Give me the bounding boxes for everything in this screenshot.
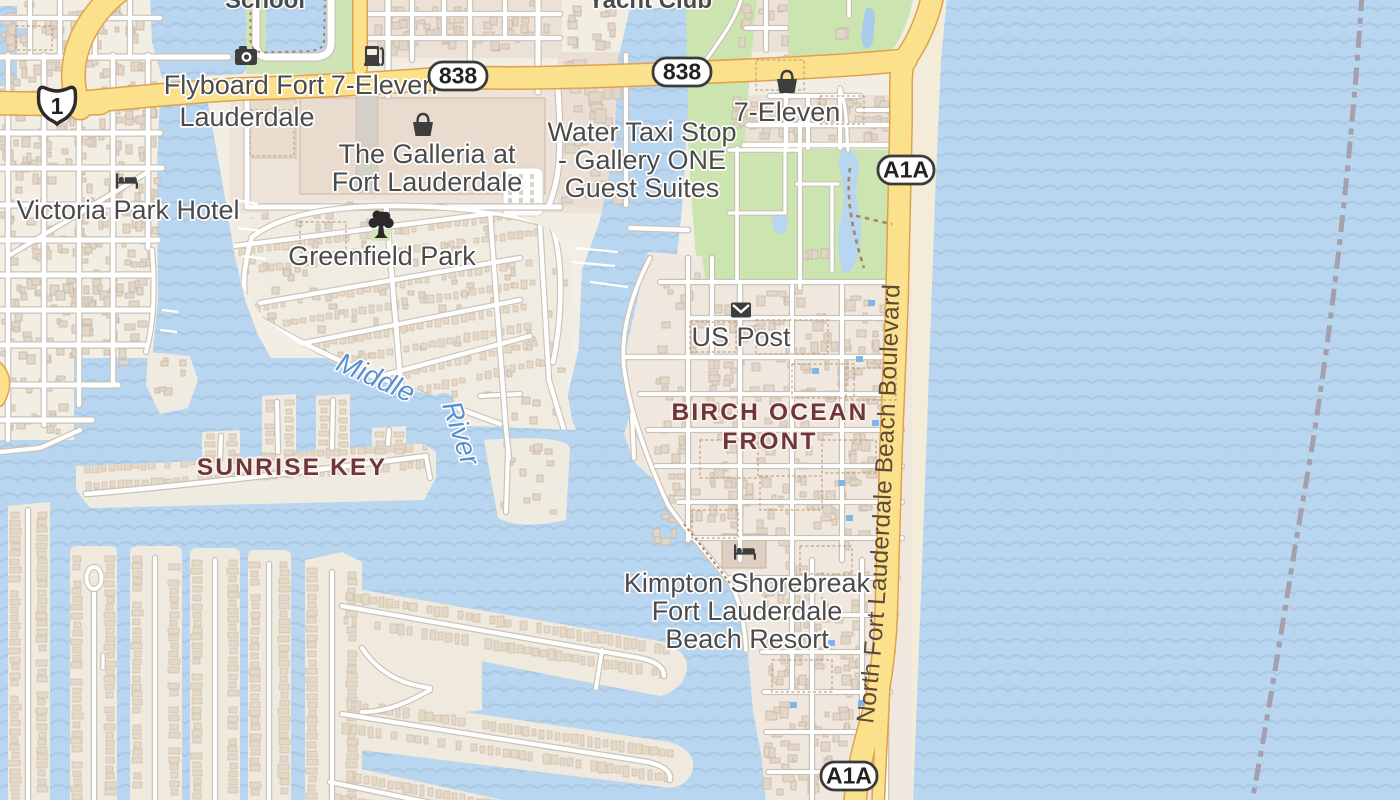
svg-text:School: School bbox=[225, 0, 305, 14]
svg-text:Flyboard Fort: Flyboard Fort bbox=[164, 70, 325, 100]
svg-text:Fort Lauderdale: Fort Lauderdale bbox=[652, 596, 843, 626]
svg-text:Greenfield Park: Greenfield Park bbox=[288, 241, 476, 271]
svg-text:Yacht Club: Yacht Club bbox=[588, 0, 712, 14]
svg-text:Lauderdale: Lauderdale bbox=[179, 102, 314, 132]
svg-text:US Post: US Post bbox=[691, 322, 791, 352]
svg-text:BIRCH OCEAN: BIRCH OCEAN bbox=[671, 399, 868, 426]
svg-text:838: 838 bbox=[439, 63, 478, 89]
svg-text:Victoria Park Hotel: Victoria Park Hotel bbox=[16, 195, 239, 225]
svg-text:A1A: A1A bbox=[826, 763, 872, 789]
svg-text:1: 1 bbox=[51, 93, 64, 119]
svg-text:Guest Suites: Guest Suites bbox=[565, 173, 720, 203]
svg-text:Fort Lauderdale: Fort Lauderdale bbox=[332, 167, 523, 197]
svg-text:838: 838 bbox=[663, 59, 702, 85]
svg-text:Water Taxi Stop: Water Taxi Stop bbox=[547, 117, 736, 147]
svg-text:SUNRISE KEY: SUNRISE KEY bbox=[197, 454, 387, 481]
svg-text:7-Eleven: 7-Eleven bbox=[331, 70, 438, 100]
svg-text:The Galleria at: The Galleria at bbox=[338, 139, 516, 169]
svg-text:7-Eleven: 7-Eleven bbox=[734, 97, 841, 127]
svg-text:FRONT: FRONT bbox=[722, 428, 817, 455]
svg-text:Kimpton Shorebreak: Kimpton Shorebreak bbox=[624, 568, 871, 598]
svg-text:A1A: A1A bbox=[883, 157, 929, 183]
svg-text:Beach Resort: Beach Resort bbox=[665, 624, 829, 654]
svg-text:- Gallery ONE: - Gallery ONE bbox=[558, 145, 726, 175]
